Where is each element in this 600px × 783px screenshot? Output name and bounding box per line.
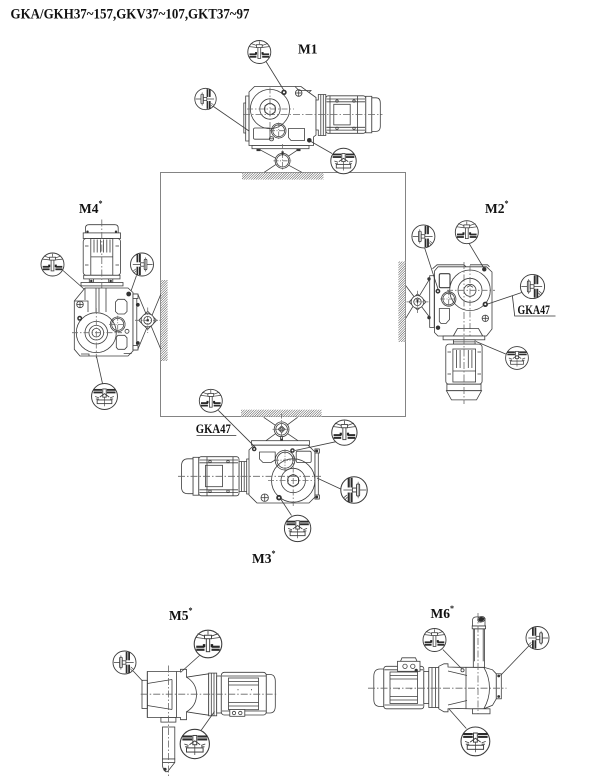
svg-text:GKA47: GKA47 bbox=[196, 422, 231, 436]
svg-text:M2: M2 bbox=[485, 201, 505, 216]
svg-text:*: * bbox=[505, 199, 509, 208]
svg-text:M4: M4 bbox=[79, 201, 99, 216]
svg-text:M3: M3 bbox=[252, 551, 272, 566]
svg-text:*: * bbox=[99, 199, 103, 208]
svg-text:*: * bbox=[189, 606, 193, 615]
svg-text:*: * bbox=[272, 549, 276, 558]
svg-text:M5: M5 bbox=[169, 608, 189, 623]
svg-text:GKA47: GKA47 bbox=[518, 303, 551, 317]
svg-text:GKA/GKH37~157,GKV37~107,GKT37~: GKA/GKH37~157,GKV37~107,GKT37~97 bbox=[11, 7, 250, 23]
svg-text:*: * bbox=[450, 604, 454, 613]
svg-text:M6: M6 bbox=[431, 606, 451, 621]
svg-text:M1: M1 bbox=[298, 42, 318, 57]
